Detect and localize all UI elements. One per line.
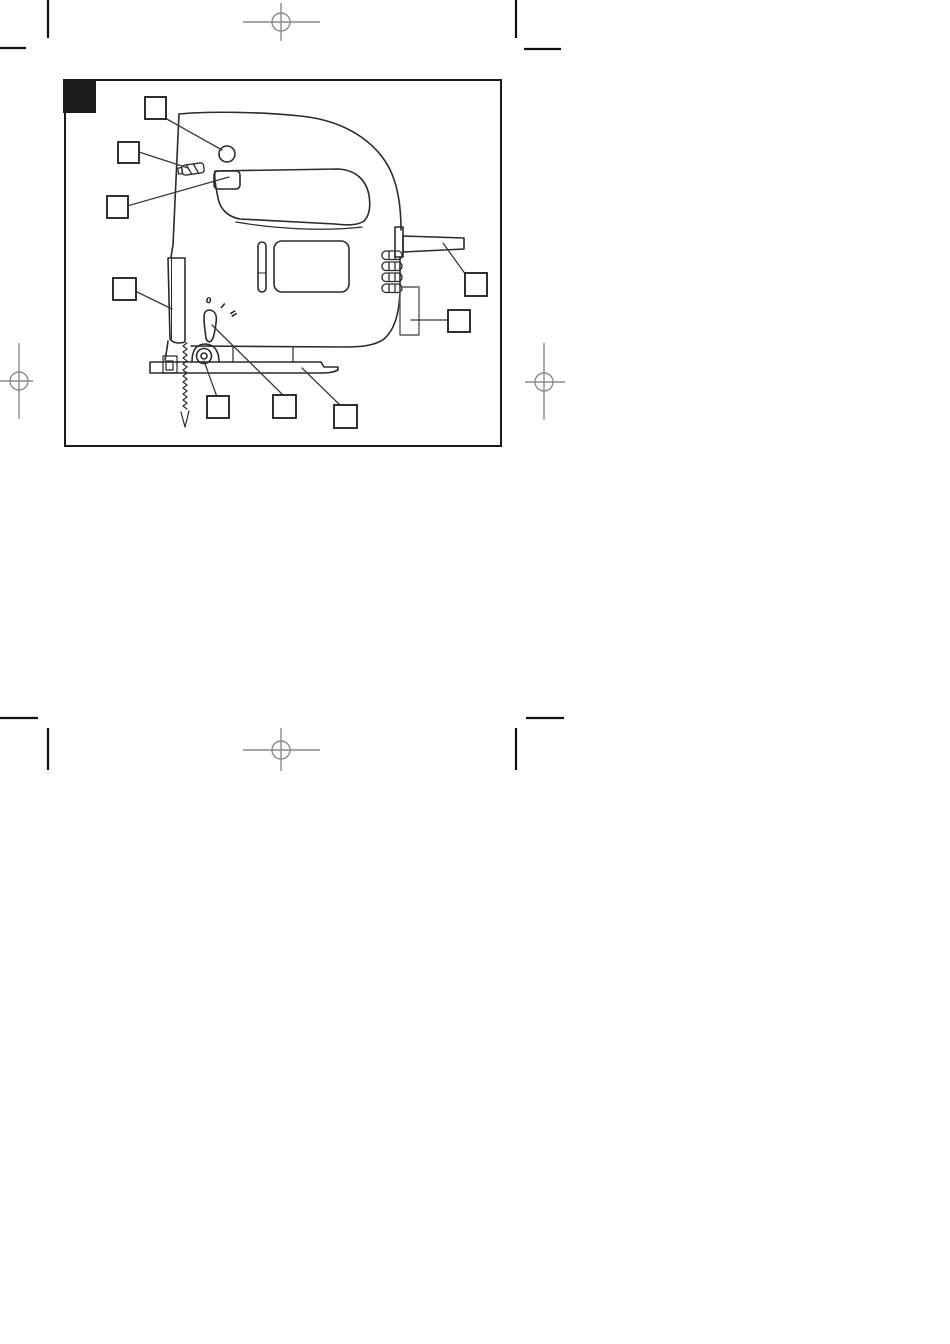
section-marker-black-square bbox=[63, 79, 96, 113]
switch-mark-1: I bbox=[219, 302, 227, 311]
speed-dial-knob bbox=[219, 146, 235, 162]
saw-blade-arrow-tip bbox=[181, 411, 189, 427]
guide-roller-screw bbox=[201, 353, 207, 359]
leader-2 bbox=[139, 152, 188, 168]
base-plate bbox=[150, 362, 338, 373]
saw-blade-teeth bbox=[183, 343, 187, 409]
dust-port bbox=[400, 287, 419, 335]
page-canvas: 0 I II bbox=[0, 0, 950, 1344]
body-front-edge bbox=[171, 114, 179, 257]
switch-mark-0: 0 bbox=[205, 296, 213, 306]
callout-box-8 bbox=[273, 395, 296, 418]
switch-mark-2: II bbox=[228, 309, 239, 319]
body-top-right-outline bbox=[179, 112, 401, 230]
power-cord bbox=[403, 236, 464, 252]
callout-box-7 bbox=[207, 396, 229, 418]
body-front-bottom-edge bbox=[165, 341, 168, 360]
callout-leader-lines bbox=[127, 118, 466, 407]
figure-border bbox=[65, 80, 501, 446]
callout-box-3 bbox=[107, 196, 128, 218]
leader-4 bbox=[135, 291, 172, 309]
switch-lever bbox=[204, 310, 216, 342]
switch-markings: 0 I II bbox=[205, 296, 239, 319]
registration-crosshair-left-middle bbox=[0, 343, 33, 419]
blade-clamp-lever bbox=[177, 163, 204, 177]
nameplate-window bbox=[274, 241, 349, 292]
registration-crosshair-right-middle bbox=[525, 343, 565, 420]
callout-box-1 bbox=[145, 97, 166, 119]
callout-box-9 bbox=[334, 405, 357, 428]
document-page: 0 I II bbox=[0, 0, 950, 1344]
callout-box-4 bbox=[113, 278, 136, 300]
handle-cutout bbox=[215, 169, 370, 225]
leader-5 bbox=[443, 243, 466, 275]
registration-crosshairs bbox=[0, 3, 565, 771]
blade-guard bbox=[168, 258, 185, 343]
callout-box-2 bbox=[118, 142, 139, 163]
callout-box-6 bbox=[448, 310, 470, 332]
trim-tick-marks bbox=[0, 0, 564, 770]
leader-8 bbox=[212, 325, 284, 396]
front-slot bbox=[258, 242, 266, 292]
registration-crosshair-top-center bbox=[243, 3, 320, 41]
leader-9 bbox=[302, 368, 342, 407]
leader-3 bbox=[127, 177, 229, 206]
callout-box-5 bbox=[465, 273, 487, 296]
leader-7 bbox=[204, 361, 217, 397]
handle-grip-lower-line bbox=[236, 222, 362, 229]
body-lower-right-outline bbox=[191, 257, 400, 347]
callout-boxes bbox=[107, 97, 487, 428]
leader-1 bbox=[165, 118, 222, 150]
registration-crosshair-mid-center bbox=[243, 728, 320, 771]
jigsaw-drawing bbox=[150, 112, 464, 427]
